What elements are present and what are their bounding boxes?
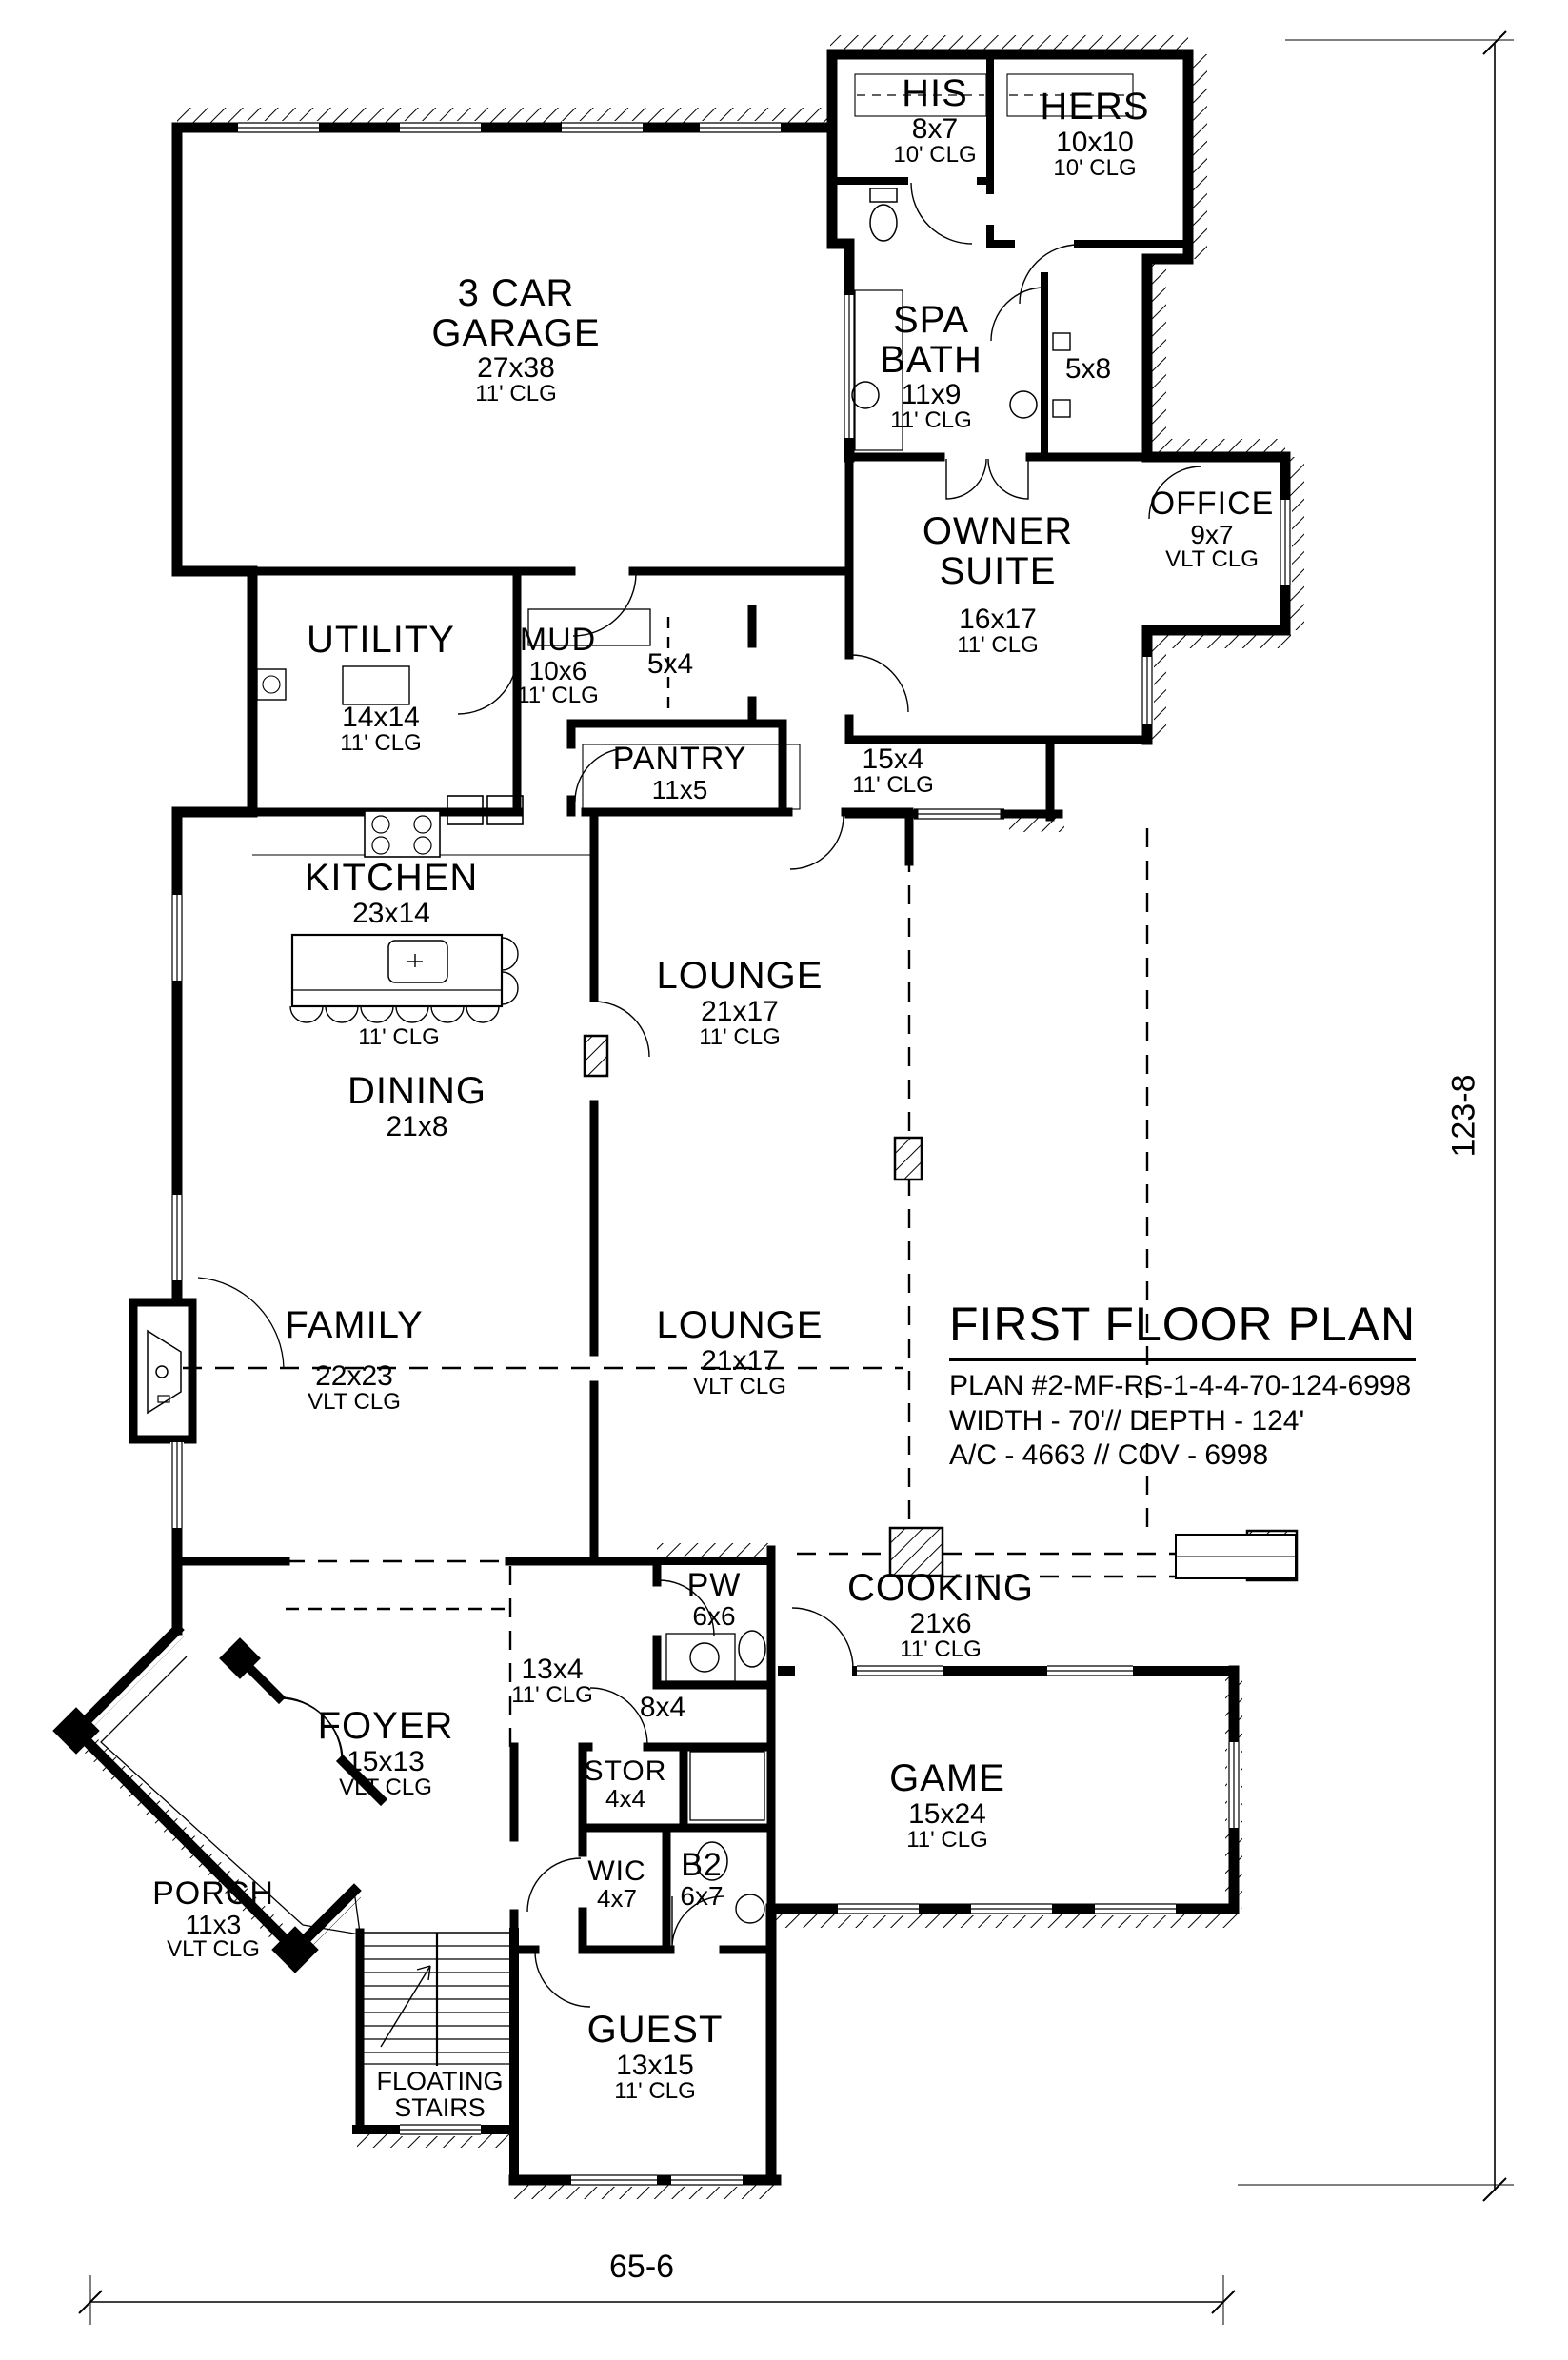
room-label-hers: HERS 10x10 10' CLG — [1040, 88, 1149, 181]
windows — [170, 121, 1292, 2187]
room-label-lounge-upper: LOUNGE 21x17 11' CLG — [657, 957, 824, 1050]
page-title: FIRST FLOOR PLAN — [949, 1297, 1416, 1361]
room-label-cooking: COOKING 21x6 11' CLG — [847, 1569, 1034, 1662]
room-label-family: FAMILY 22x23 VLT CLG — [285, 1306, 423, 1415]
room-label-dining: DINING 21x8 — [347, 1072, 486, 1141]
room-label-b2: B2 6x7 — [680, 1849, 723, 1910]
room-label-pw: PW 6x6 — [687, 1569, 742, 1630]
room-label-wic: WIC 4x7 — [587, 1856, 645, 1912]
outdoor-kitchen-counter — [1176, 1535, 1296, 1578]
title-block: FIRST FLOOR PLAN PLAN #2-MF-RS-1-4-4-70-… — [949, 1297, 1416, 1474]
room-label-office: OFFICE 9x7 VLT CLG — [1150, 487, 1275, 572]
room-label-pantry: PANTRY 11x5 — [613, 743, 747, 803]
floorplan-linework — [0, 0, 1568, 2360]
room-label-guest: GUEST 13x15 11' CLG — [587, 2011, 724, 2104]
room-label-8x4: 8x4 — [640, 1693, 685, 1722]
dimension-depth: 123-8 — [1446, 1075, 1483, 1158]
dimension-lines — [79, 31, 1514, 2325]
floor-plan-sheet: 3 CAR GARAGE 27x38 11' CLG HIS 8x7 10' C… — [0, 0, 1568, 2360]
room-label-utility-dims: 14x14 11' CLG — [340, 703, 422, 756]
room-label-kitchen: KITCHEN 23x14 — [305, 859, 479, 928]
room-label-5x8: 5x8 — [1065, 354, 1111, 384]
room-label-spa-bath: SPA BATH 11x9 11' CLG — [880, 301, 982, 433]
room-label-mud: MUD 10x6 11' CLG — [517, 624, 599, 708]
plan-areas: A/C - 4663 // COV - 6998 — [949, 1438, 1416, 1474]
room-label-garage: 3 CAR GARAGE 27x38 11' CLG — [431, 274, 600, 407]
room-label-foyer: FOYER 15x13 VLT CLG — [318, 1707, 454, 1800]
fireplace — [133, 1278, 284, 1439]
room-label-utility: UTILITY — [307, 621, 455, 661]
room-label-stor: STOR 4x4 — [585, 1756, 667, 1812]
plan-number: PLAN #2-MF-RS-1-4-4-70-124-6998 — [949, 1369, 1416, 1404]
room-label-kitchen-clg: 11' CLG — [358, 1026, 440, 1050]
room-label-owner-suite: OWNER SUITE 16x17 11' CLG — [923, 512, 1073, 658]
range — [252, 811, 590, 857]
room-label-15x4: 15x4 11' CLG — [852, 744, 934, 798]
kitchen-island — [290, 935, 518, 1022]
plan-width-depth: WIDTH - 70'// DEPTH - 124' — [949, 1404, 1416, 1439]
dimension-width: 65-6 — [609, 2249, 674, 2286]
room-label-13x4: 13x4 11' CLG — [511, 1655, 593, 1708]
floating-stairs — [360, 1933, 514, 2066]
room-label-lounge-lower: LOUNGE 21x17 VLT CLG — [657, 1306, 824, 1399]
room-label-porch: PORCH 11x3 VLT CLG — [152, 1877, 274, 1962]
room-label-5x4: 5x4 — [647, 649, 693, 679]
room-label-game: GAME 15x24 11' CLG — [889, 1759, 1005, 1853]
label-floating-stairs: FLOATING STAIRS — [376, 2068, 503, 2121]
room-label-his: HIS 8x7 10' CLG — [893, 74, 976, 168]
